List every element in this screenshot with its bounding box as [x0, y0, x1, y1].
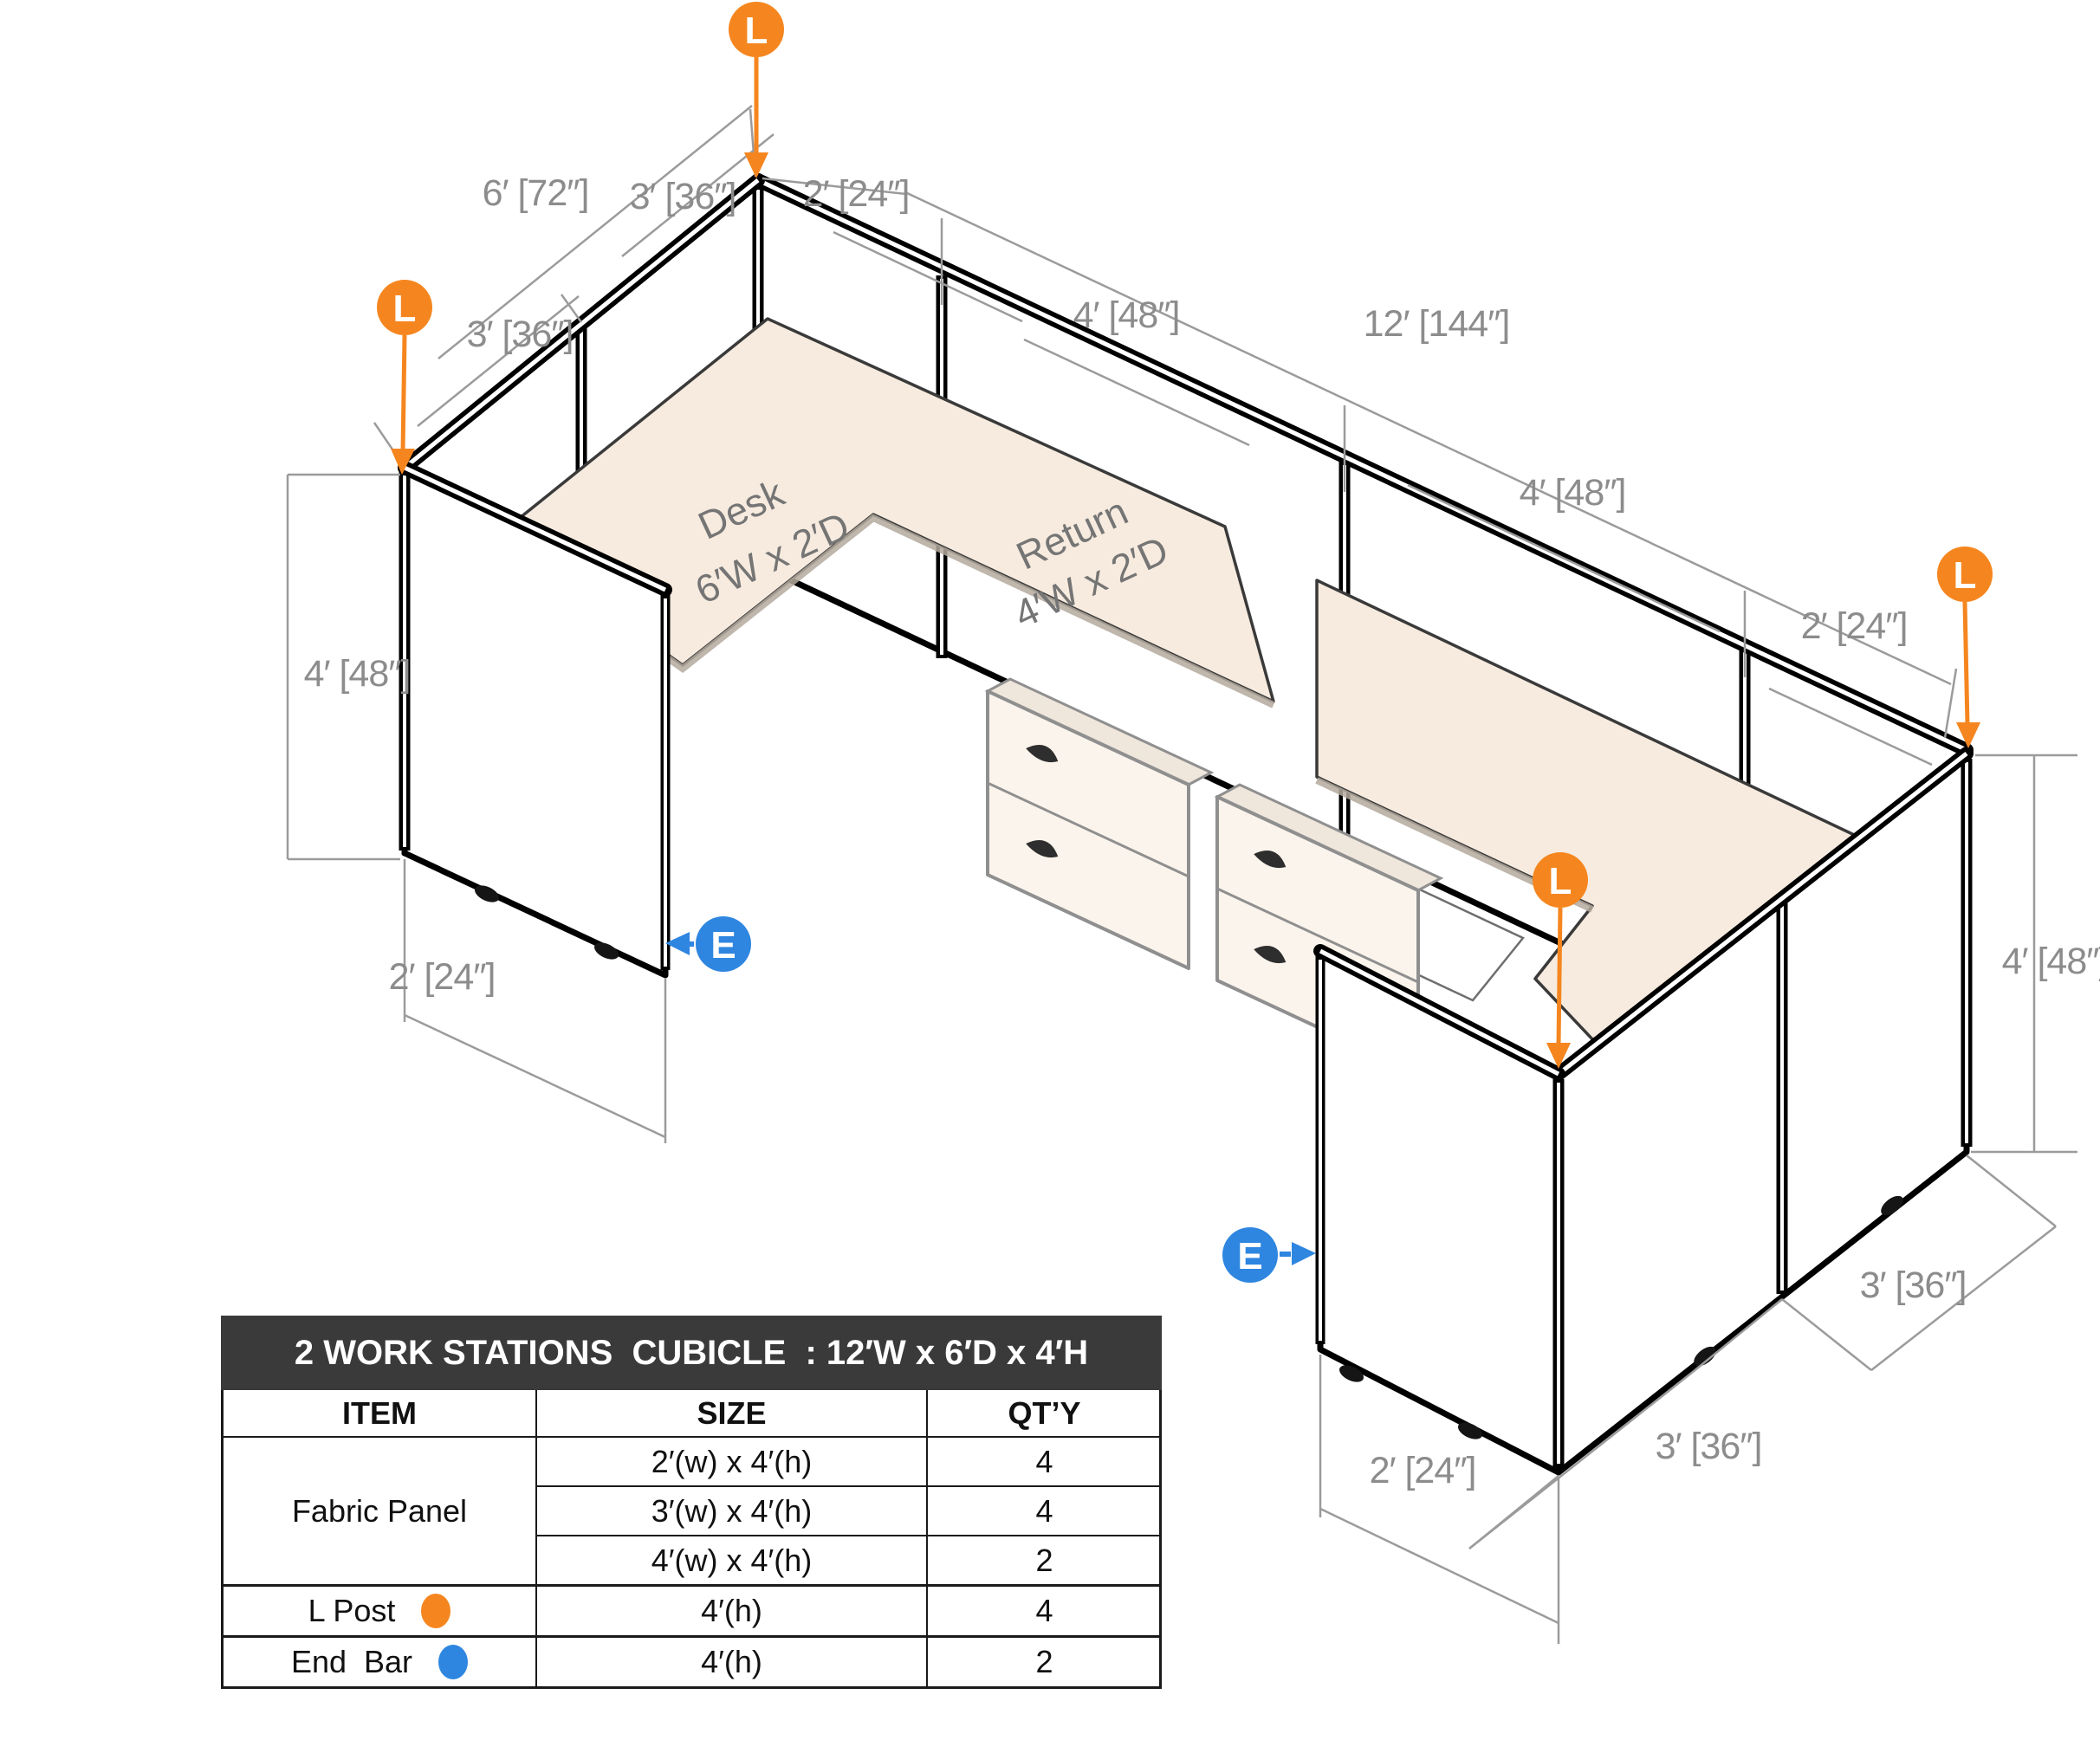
qty-cell: 4 [926, 1485, 1161, 1535]
size-cell: 3′(w) x 4′(h) [535, 1485, 926, 1535]
qty-cell: 2 [926, 1635, 1161, 1686]
col-header-size: SIZE [535, 1390, 926, 1436]
l-post-letter: L [1954, 554, 1977, 597]
size-cell: 2′(w) x 4′(h) [535, 1436, 926, 1485]
dim-label: 2′ [24″] [1370, 1450, 1476, 1491]
dim-label: 12′ [144″] [1364, 303, 1510, 345]
l-post-letter: L [745, 10, 768, 52]
right-return-panel [1320, 951, 1559, 1472]
end-bar-marker-bottom: E [1222, 1227, 1316, 1283]
dim-label: 3′ [36″] [1860, 1265, 1967, 1306]
dim-label: 4′ [48″] [2002, 941, 2100, 982]
size-cell: 4′(w) x 4′(h) [535, 1535, 926, 1584]
dim-label: 2′ [24″] [1801, 605, 1908, 647]
l-post-letter: L [393, 288, 417, 330]
spec-table-title: 2 WORK STATIONS CUBICLE : 12′W x 6′D x 4… [221, 1316, 1162, 1390]
size-cell: 4′(h) [535, 1635, 926, 1686]
dim-label: 3′ [36″] [630, 176, 736, 217]
qty-cell: 2 [926, 1535, 1161, 1584]
item-end-bar-label: End Bar [291, 1644, 412, 1680]
dim-label: 4′ [48″] [1073, 294, 1180, 336]
dim-label: 2′ [24″] [803, 173, 910, 215]
item-l-post: L Post [224, 1584, 535, 1635]
end-bar-marker-left: E [665, 916, 751, 972]
dim-label: 2′ [24″] [389, 956, 496, 998]
col-header-item: ITEM [224, 1390, 535, 1436]
cubicle-diagram-page: 6′ [72″] 3′ [36″] 2′ [24″] 4′ [48″] 12′ … [0, 0, 2100, 1740]
spec-table-grid: ITEM SIZE QT’Y Fabric Panel 2′(w) x 4′(h… [221, 1390, 1162, 1689]
dim-label: 4′ [48″] [304, 653, 411, 695]
spec-table: 2 WORK STATIONS CUBICLE : 12′W x 6′D x 4… [221, 1316, 1162, 1689]
l-post-marker-right: L [1937, 547, 1993, 748]
qty-cell: 4 [926, 1584, 1161, 1635]
dim-label: 3′ [36″] [467, 314, 574, 355]
l-post-legend-dot [421, 1594, 450, 1628]
size-cell: 4′(h) [535, 1584, 926, 1635]
end-bar-letter: E [1237, 1235, 1262, 1278]
dim-label: 6′ [72″] [483, 172, 589, 214]
end-bar-legend-dot [438, 1645, 468, 1679]
end-bar-letter: E [710, 924, 736, 967]
col-header-qty: QT’Y [926, 1390, 1161, 1436]
item-l-post-label: L Post [308, 1593, 396, 1629]
dim-label: 3′ [36″] [1656, 1426, 1762, 1467]
item-end-bar: End Bar [224, 1635, 535, 1686]
item-fabric-panel: Fabric Panel [224, 1436, 535, 1584]
l-post-marker-top: L [729, 2, 784, 178]
l-post-letter: L [1549, 860, 1572, 902]
dim-label: 4′ [48″] [1520, 472, 1626, 514]
qty-cell: 4 [926, 1436, 1161, 1485]
